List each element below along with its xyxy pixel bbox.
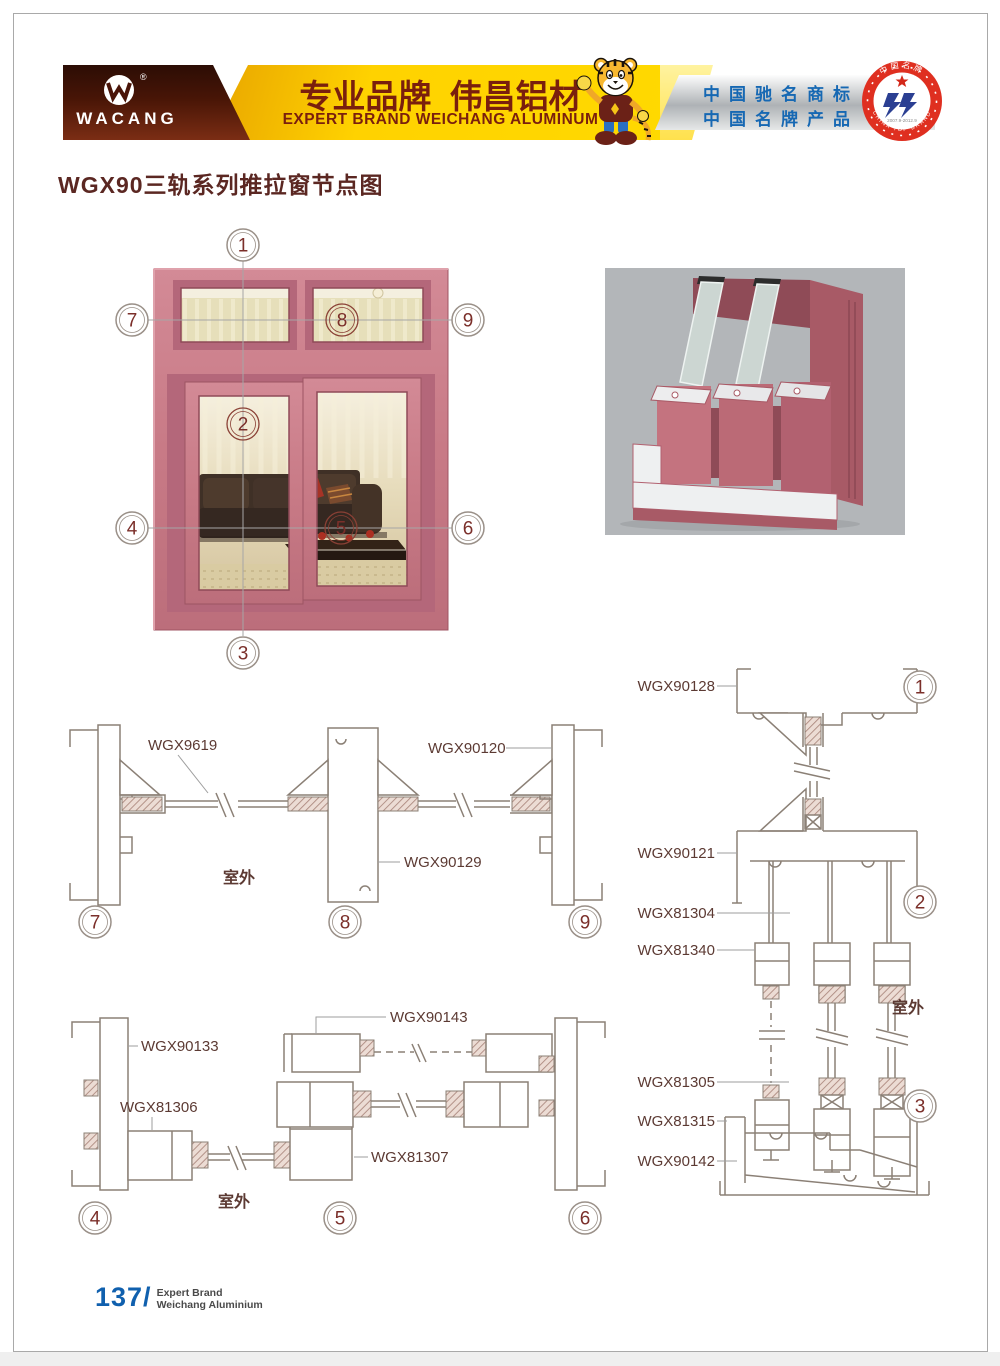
footer-line-2: Weichang Aluminium <box>157 1299 263 1311</box>
window-callout-1: 1 <box>227 229 259 261</box>
svg-text:9: 9 <box>463 311 474 332</box>
part-label-wgx81340: WGX81340 <box>637 942 715 959</box>
svg-text:3: 3 <box>238 644 249 665</box>
footer-line-1: Expert Brand <box>157 1287 263 1299</box>
profile-3d-render <box>605 268 905 535</box>
part-label-wgx81315: WGX81315 <box>637 1113 715 1130</box>
page-number: 137/ <box>95 1284 152 1311</box>
china-top-brand-badge: 2007.9-2012.9 中国名牌 CHINA TOP BRAND <box>860 59 944 143</box>
section-drawing-right-vertical: WGX90128 WGX90121 WGX81304 WGX81340 WGX8… <box>620 655 960 1245</box>
part-label-wgx90142: WGX90142 <box>637 1153 715 1170</box>
svg-text:8: 8 <box>337 311 348 332</box>
header-banner: ® WACANG 专业品牌 伟昌铝材 EXPERT BRAND WEICHANG… <box>63 65 935 140</box>
svg-text:1: 1 <box>238 236 249 257</box>
part-label-wgx90120: WGX90120 <box>428 740 506 757</box>
section-callout-5: 5 <box>324 1202 356 1234</box>
svg-text:2: 2 <box>915 893 926 914</box>
part-label-wgx90129: WGX90129 <box>404 854 482 871</box>
svg-text:2: 2 <box>238 415 249 436</box>
section-callout-6: 6 <box>569 1202 601 1234</box>
wacang-logo-icon: ® <box>93 70 159 110</box>
part-label-wgx90143: WGX90143 <box>390 1009 468 1026</box>
svg-text:6: 6 <box>463 519 474 540</box>
window-callout-7: 7 <box>116 304 148 336</box>
part-label-wgx9619: WGX9619 <box>148 737 217 754</box>
window-callout-6: 6 <box>452 512 484 544</box>
part-label-wgx90128: WGX90128 <box>637 678 715 695</box>
window-illustration: 1 7 9 4 6 3 8 2 5 <box>105 226 495 678</box>
section-callout-4: 4 <box>79 1202 111 1234</box>
part-label-wgx81304: WGX81304 <box>637 905 715 922</box>
outdoor-label: 室外 <box>892 998 924 1017</box>
section-callout-3: 3 <box>904 1090 936 1122</box>
part-label-wgx81306: WGX81306 <box>120 1099 198 1116</box>
outdoor-label: 室外 <box>218 1192 250 1211</box>
window-callout-9: 9 <box>452 304 484 336</box>
footer: 137/ Expert Brand Weichang Aluminium <box>95 1284 263 1311</box>
part-label-wgx81305: WGX81305 <box>637 1074 715 1091</box>
page-bottom-strip <box>0 1352 1000 1366</box>
part-label-wgx81307: WGX81307 <box>371 1149 449 1166</box>
section-callout-8: 8 <box>329 906 361 938</box>
svg-text:5: 5 <box>336 519 347 540</box>
window-callout-3: 3 <box>227 637 259 669</box>
section-drawing-top-horizontal: WGX9619 WGX90120 WGX90129 室外 7 8 9 <box>60 695 620 960</box>
section-callout-2: 2 <box>904 886 936 918</box>
svg-text:4: 4 <box>127 519 138 540</box>
part-label-wgx90133: WGX90133 <box>141 1038 219 1055</box>
page-title: WGX90三轨系列推拉窗节点图 <box>58 166 384 200</box>
svg-text:9: 9 <box>580 913 591 934</box>
badge-years: 2007.9-2012.9 <box>887 118 917 123</box>
section-callout-9: 9 <box>569 906 601 938</box>
svg-text:4: 4 <box>90 1209 101 1230</box>
catalog-page: ® WACANG 专业品牌 伟昌铝材 EXPERT BRAND WEICHANG… <box>0 0 1000 1366</box>
svg-text:6: 6 <box>580 1209 591 1230</box>
registered-mark: ® <box>140 72 147 82</box>
part-label-wgx90121: WGX90121 <box>637 845 715 862</box>
svg-text:5: 5 <box>335 1209 346 1230</box>
svg-text:7: 7 <box>90 913 101 934</box>
svg-text:8: 8 <box>340 913 351 934</box>
svg-text:7: 7 <box>127 311 138 332</box>
window-callout-4: 4 <box>116 512 148 544</box>
section-callout-1: 1 <box>904 671 936 703</box>
brand-name: WACANG <box>69 109 185 129</box>
tiger-mascot-icon <box>573 56 659 149</box>
outdoor-label: 室外 <box>223 868 255 887</box>
svg-text:1: 1 <box>915 678 926 699</box>
brand-logo-block: ® WACANG <box>63 65 250 140</box>
svg-text:3: 3 <box>915 1097 926 1118</box>
section-drawing-bottom-horizontal: WGX90133 WGX81306 WGX90143 WGX81307 室外 4… <box>60 1000 620 1250</box>
section-callout-7: 7 <box>79 906 111 938</box>
